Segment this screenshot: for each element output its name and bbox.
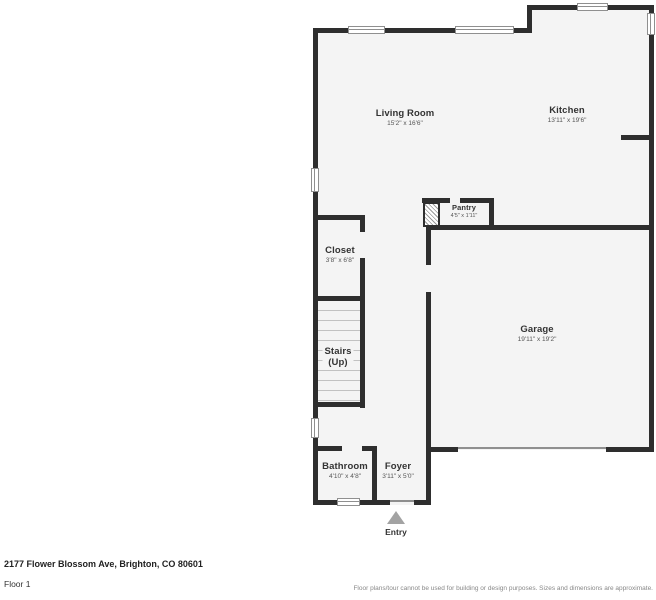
room-label-foyer: Foyer 3'11" x 5'0" bbox=[382, 461, 414, 481]
wall-segment bbox=[426, 447, 458, 452]
disclaimer-text: Floor plans/tour cannot be used for buil… bbox=[353, 585, 653, 592]
room-name: Stairs bbox=[324, 346, 351, 357]
wall-segment bbox=[313, 446, 342, 451]
window-marker bbox=[348, 26, 385, 34]
wall-segment bbox=[372, 446, 377, 505]
window-marker bbox=[311, 168, 319, 192]
window-marker bbox=[577, 3, 608, 11]
room-name: Bathroom bbox=[322, 461, 368, 472]
wall-segment bbox=[426, 292, 431, 505]
wall-segment bbox=[414, 500, 431, 505]
address-text: 2177 Flower Blossom Ave, Brighton, CO 80… bbox=[4, 559, 203, 569]
room-name: Garage bbox=[518, 324, 557, 335]
room-name: Living Room bbox=[376, 108, 435, 119]
wall-segment bbox=[360, 258, 365, 301]
window-marker bbox=[337, 498, 360, 506]
garage-door-line bbox=[458, 447, 606, 449]
room-label-garage: Garage 19'11" x 19'2" bbox=[518, 324, 557, 344]
wall-segment bbox=[313, 28, 350, 33]
room-name: Kitchen bbox=[548, 105, 587, 116]
wall-segment bbox=[313, 28, 318, 170]
wall-segment bbox=[383, 28, 457, 33]
entry-label: Entry bbox=[385, 527, 407, 537]
wall-segment bbox=[649, 33, 654, 452]
wall-segment bbox=[372, 500, 390, 505]
wall-segment bbox=[606, 5, 654, 10]
room-dims: 3'8" x 6'8" bbox=[325, 257, 355, 265]
wall-segment bbox=[316, 402, 365, 407]
entry-threshold-line bbox=[390, 500, 414, 502]
wall-segment bbox=[527, 5, 579, 10]
wall-segment bbox=[313, 215, 365, 220]
floor-number-text: Floor 1 bbox=[4, 579, 30, 589]
wall-segment bbox=[621, 135, 649, 140]
wall-segment bbox=[426, 225, 654, 230]
room-dims: 19'11" x 19'2" bbox=[518, 336, 557, 344]
window-marker bbox=[647, 13, 655, 35]
entry-arrow-icon bbox=[387, 511, 405, 524]
room-label-kitchen: Kitchen 13'11" x 19'6" bbox=[548, 105, 587, 125]
wall-segment bbox=[360, 215, 365, 232]
room-label-living: Living Room 15'2" x 16'6" bbox=[376, 108, 435, 128]
room-name: Foyer bbox=[382, 461, 414, 472]
room-label-pantry: Pantry 4'5" x 1'11" bbox=[451, 203, 478, 220]
window-marker bbox=[311, 418, 319, 438]
room-name: Closet bbox=[325, 245, 355, 256]
room-dims: 3'11" x 5'0" bbox=[382, 473, 414, 481]
room-dims: 4'5" x 1'11" bbox=[451, 213, 478, 220]
room-sub: (Up) bbox=[324, 357, 351, 368]
wall-segment bbox=[606, 447, 654, 452]
room-dims: 15'2" x 16'6" bbox=[376, 120, 435, 128]
room-label-stairs: Stairs (Up) bbox=[322, 346, 353, 369]
wall-segment bbox=[426, 230, 431, 265]
room-label-closet: Closet 3'8" x 6'8" bbox=[325, 245, 355, 265]
room-name: Pantry bbox=[451, 203, 478, 212]
wall-segment bbox=[313, 500, 339, 505]
wall-segment bbox=[360, 296, 365, 408]
floorplan-canvas: Entry Living Room 15'2" x 16'6" Kitchen … bbox=[0, 0, 656, 600]
pantry-hatch-area bbox=[423, 202, 440, 227]
room-dims: 13'11" x 19'6" bbox=[548, 117, 587, 125]
room-label-bathroom: Bathroom 4'10" x 4'8" bbox=[322, 461, 368, 481]
room-dims: 4'10" x 4'8" bbox=[322, 473, 368, 481]
window-marker bbox=[455, 26, 514, 34]
